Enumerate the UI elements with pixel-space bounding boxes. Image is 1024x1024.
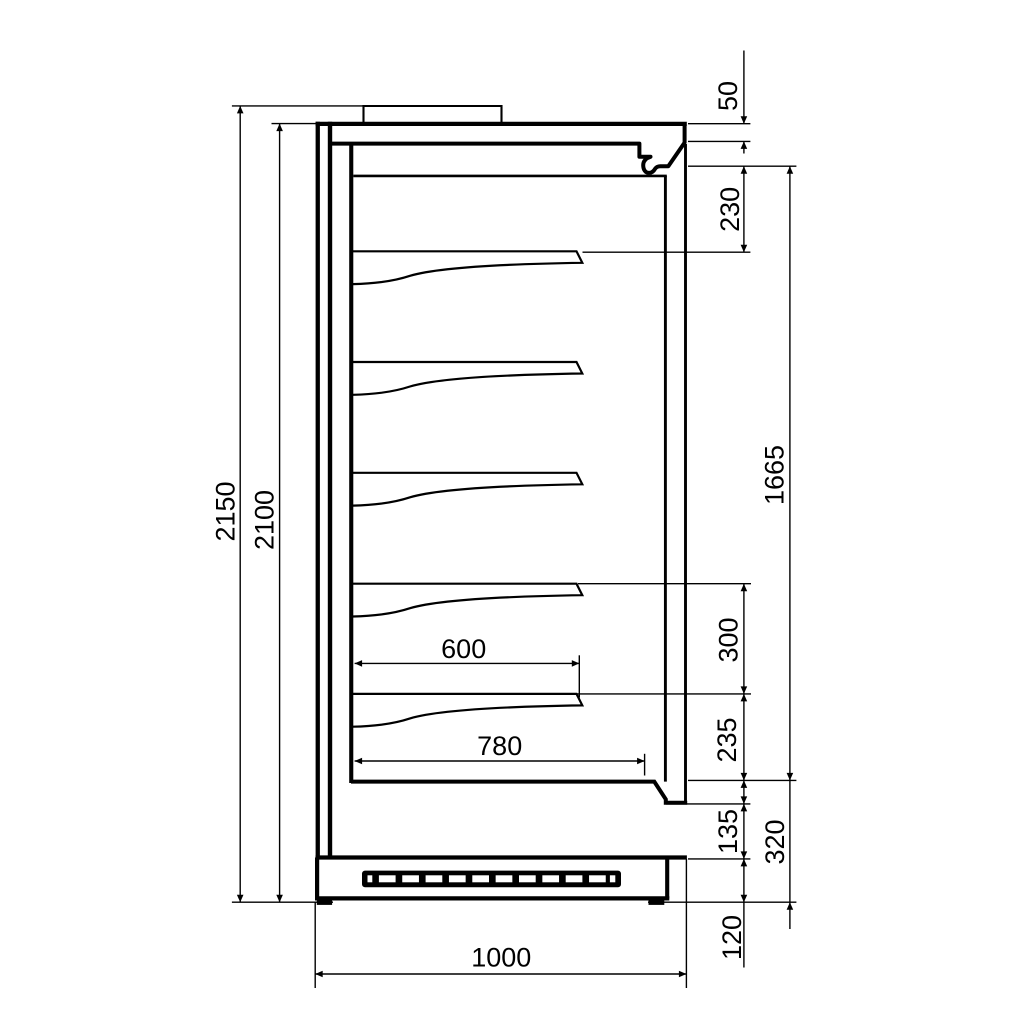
svg-text:320: 320 bbox=[760, 819, 790, 864]
svg-text:1665: 1665 bbox=[760, 445, 790, 505]
svg-text:2100: 2100 bbox=[250, 490, 280, 550]
svg-text:235: 235 bbox=[712, 717, 742, 762]
svg-text:1000: 1000 bbox=[471, 942, 531, 972]
svg-text:780: 780 bbox=[477, 731, 522, 761]
svg-text:50: 50 bbox=[713, 81, 743, 111]
svg-text:120: 120 bbox=[717, 915, 747, 960]
svg-text:600: 600 bbox=[441, 634, 486, 664]
svg-text:230: 230 bbox=[715, 187, 745, 232]
svg-text:300: 300 bbox=[714, 617, 744, 662]
svg-text:135: 135 bbox=[713, 809, 743, 854]
svg-text:2150: 2150 bbox=[211, 481, 241, 541]
